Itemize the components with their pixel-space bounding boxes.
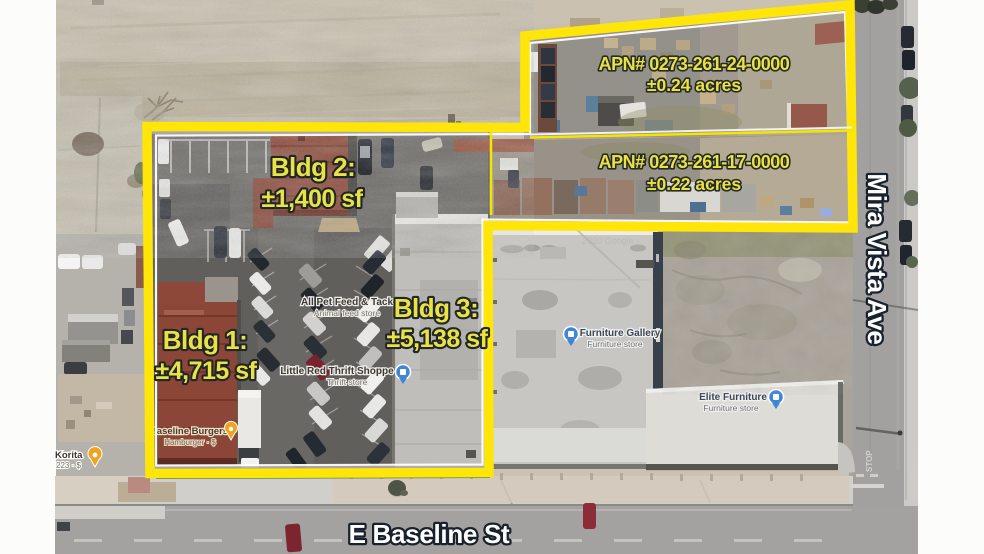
svg-text:±1,400 sf: ±1,400 sf bbox=[262, 185, 364, 213]
svg-text:±4,715 sf: ±4,715 sf bbox=[156, 357, 258, 385]
svg-text:Bldg 3:: Bldg 3: bbox=[394, 293, 479, 323]
svg-text:223 · $: 223 · $ bbox=[56, 461, 81, 470]
svg-text:E Baseline St: E Baseline St bbox=[349, 519, 510, 549]
svg-text:Hamburger · $: Hamburger · $ bbox=[164, 438, 216, 447]
svg-text:Thrift store: Thrift store bbox=[327, 377, 368, 387]
svg-text:STOP: STOP bbox=[865, 450, 874, 472]
svg-text:APN# 0273-261-17-0000: APN# 0273-261-17-0000 bbox=[599, 152, 790, 172]
svg-text:Furniture Gallery: Furniture Gallery bbox=[580, 328, 661, 339]
svg-text:Mira Vista Ave: Mira Vista Ave bbox=[862, 173, 892, 344]
svg-text:Baseline Burgers: Baseline Burgers bbox=[150, 426, 228, 437]
svg-text:Bldg 2:: Bldg 2: bbox=[271, 152, 356, 182]
svg-text:±0.24 acres: ±0.24 acres bbox=[647, 75, 742, 95]
svg-text:Little Red Thrift Shoppe: Little Red Thrift Shoppe bbox=[280, 366, 394, 377]
svg-text:Korita: Korita bbox=[55, 450, 83, 461]
svg-text:APN# 0273-261-24-0000: APN# 0273-261-24-0000 bbox=[599, 54, 790, 74]
svg-text:±0.22 acres: ±0.22 acres bbox=[647, 174, 742, 194]
svg-text:Bldg 1:: Bldg 1: bbox=[163, 325, 248, 355]
svg-text:±5,138 sf: ±5,138 sf bbox=[387, 325, 489, 353]
svg-text:Animal feed store: Animal feed store bbox=[314, 308, 380, 318]
svg-text:Furniture store: Furniture store bbox=[703, 403, 759, 413]
svg-text:Furniture store: Furniture store bbox=[587, 339, 643, 349]
svg-text:All Pet Feed & Tack: All Pet Feed & Tack bbox=[301, 297, 394, 308]
